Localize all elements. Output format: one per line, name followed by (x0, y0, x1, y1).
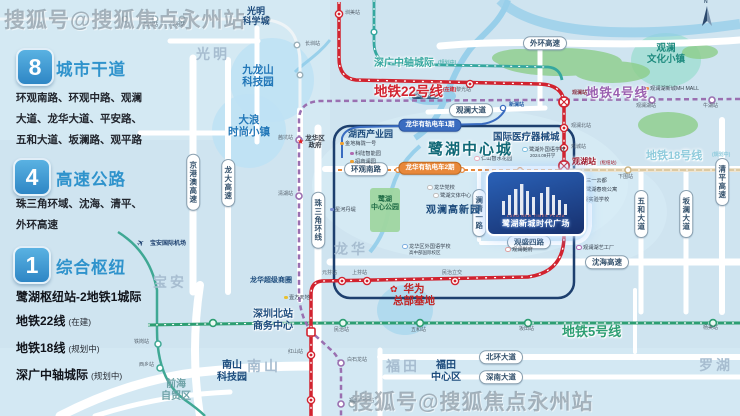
pill-wuhe-ave: 五和大道 (634, 190, 648, 238)
poi-label: 星河丹堤 (335, 206, 356, 213)
poi-label: 壹方天地 (289, 294, 310, 301)
legend-hub-line-18: 地铁18线(规划中) (16, 339, 100, 357)
poi-dot-icon (284, 296, 288, 300)
poi: 金地梅陇一号 (340, 140, 376, 147)
pill-lanqing-1st-rd: 澜清一路 (472, 189, 486, 237)
property-card: LUHU NEW TIMES PLAZA 鹭湖新城时代广场 (486, 170, 586, 236)
legend-badge-hub: 1 (13, 246, 51, 284)
poi-label: 金地梅陇一号 (345, 140, 376, 147)
legend-title-arterials: 城市干道 (56, 56, 126, 80)
poi-reservoir: 坚塘水库 (412, 90, 439, 99)
legend-badge-expressways: 4 (13, 158, 51, 196)
poi: 高中部国际校区 (409, 250, 441, 256)
poi-label: 科陆智能园 (355, 150, 381, 157)
legend-body-arterials: 环观南路、环观中路、观澜大道、龙华大道、平安路、五和大道、坂澜路、观平路 (16, 88, 152, 151)
legend-hub-line-22: 地铁22线(在建) (16, 312, 91, 330)
pill-guanlan-ave: 观澜大道 (449, 103, 493, 117)
poi-dot-icon (427, 185, 433, 191)
poi-label: 观澜湖艺工厂 (583, 244, 614, 251)
poi: 招商澜园 (350, 158, 376, 165)
pill-tram-phase1: 龙华有轨电车1期 (398, 119, 461, 132)
pill-longda-expwy: 龙大高速 (221, 159, 235, 207)
poi-dot-icon (350, 152, 354, 156)
poi: 鹭湖外国语学校 (522, 146, 565, 153)
poi: 2024.09开学 (530, 153, 555, 159)
poi-dot-icon (433, 193, 439, 199)
poi: 壹方天地 (284, 294, 310, 301)
poi: 龙华党校 (427, 184, 455, 191)
poi-label: 坚塘水库 (415, 91, 436, 98)
pill-banlan-ave: 坂澜大道 (679, 190, 693, 238)
poi: 仁山智水花园 (474, 155, 512, 162)
pill-beihuan-ave: 北环大道 (479, 350, 523, 364)
poi: 星河丹堤 (330, 206, 356, 213)
poi-dot-icon (474, 156, 480, 162)
legend-hub-line-intercity: 深广中轴城际(规划中) (16, 366, 122, 384)
poi-dot-icon (330, 208, 334, 212)
poi-dot-icon (645, 87, 649, 91)
poi-label: 2024.09开学 (530, 153, 555, 159)
poi-dot-icon (350, 160, 354, 164)
poi: 观澜湖艺工厂 (576, 244, 614, 251)
poi: 鹭湖文体中心 (433, 192, 471, 199)
interchange-guanlan (559, 97, 569, 107)
poi: 观澜樾府 (505, 246, 533, 253)
pill-tram-phase2: 龙华有轨电车2期 (398, 162, 461, 175)
poi-dot-icon (340, 142, 344, 146)
poi-label: 招商澜园 (355, 158, 376, 165)
poi: 龙华区外国语学校 (402, 243, 451, 250)
legend-body-expressways: 珠三角环域、沈海、清平、外环高速 (16, 194, 152, 236)
interchange-szn (307, 328, 315, 336)
szn-blob (377, 285, 433, 335)
legend-badge-arterials: 8 (16, 48, 54, 86)
poi-label: 龙华区外国语学校 (409, 243, 451, 250)
pill-jinggangao-expwy: 京港澳高速 (186, 154, 200, 211)
poi-label: 鹭湖春晓公寓 (586, 186, 617, 193)
pill-shenhai-expwy: 沈海高速 (585, 255, 629, 269)
poi-label: 观澜湖新城MH MALL (650, 85, 699, 92)
legend-title-expressways: 高速公路 (56, 166, 126, 190)
luhu-central-park-shape (370, 188, 400, 232)
legend-title-hub: 综合枢纽 (56, 254, 126, 278)
poi-label: 鹭湖文体中心 (440, 192, 471, 199)
poi-dot-icon (402, 244, 408, 250)
poi-label: 龙华党校 (434, 184, 455, 191)
poi-label: 仁山智水花园 (481, 155, 512, 162)
pill-prd-ring: 珠三角环线 (311, 192, 325, 249)
poi-label: 高中部国际校区 (409, 250, 441, 256)
poi: 科陆智能园 (350, 150, 381, 157)
watermark-top-left: 搜狐号@搜狐焦点永州站 (4, 4, 245, 34)
poi-label: 观澜樾府 (512, 246, 533, 253)
property-skyline (496, 181, 576, 215)
pill-waihuan-expwy: 外环高速 (523, 36, 567, 50)
property-name: 鹭湖新城时代广场 (502, 219, 570, 229)
poi-dot-icon (522, 147, 528, 153)
poi-dot-icon (576, 245, 582, 251)
pill-qingping-expwy: 清平高速 (715, 158, 729, 206)
poi-dot-icon (505, 247, 511, 253)
pill-shennan-ave: 深南大道 (479, 370, 523, 384)
poi-label: 鹭湖外国语学校 (529, 146, 565, 153)
legend-hub-subtitle: 鹭湖枢纽站-2地铁1城际 (16, 288, 141, 305)
poi: 观澜湖新城MH MALL (645, 85, 699, 92)
property-tagline: LUHU NEW TIMES PLAZA (507, 215, 565, 219)
poi-label: 三一云都 (586, 177, 607, 184)
metro-relocation-map: LUHU NEW TIMES PLAZA 鹭湖新城时代广场 8 城市干道 环观南… (0, 0, 740, 416)
watermark-bottom-right: 搜狐号@搜狐焦点永州站 (352, 386, 593, 416)
